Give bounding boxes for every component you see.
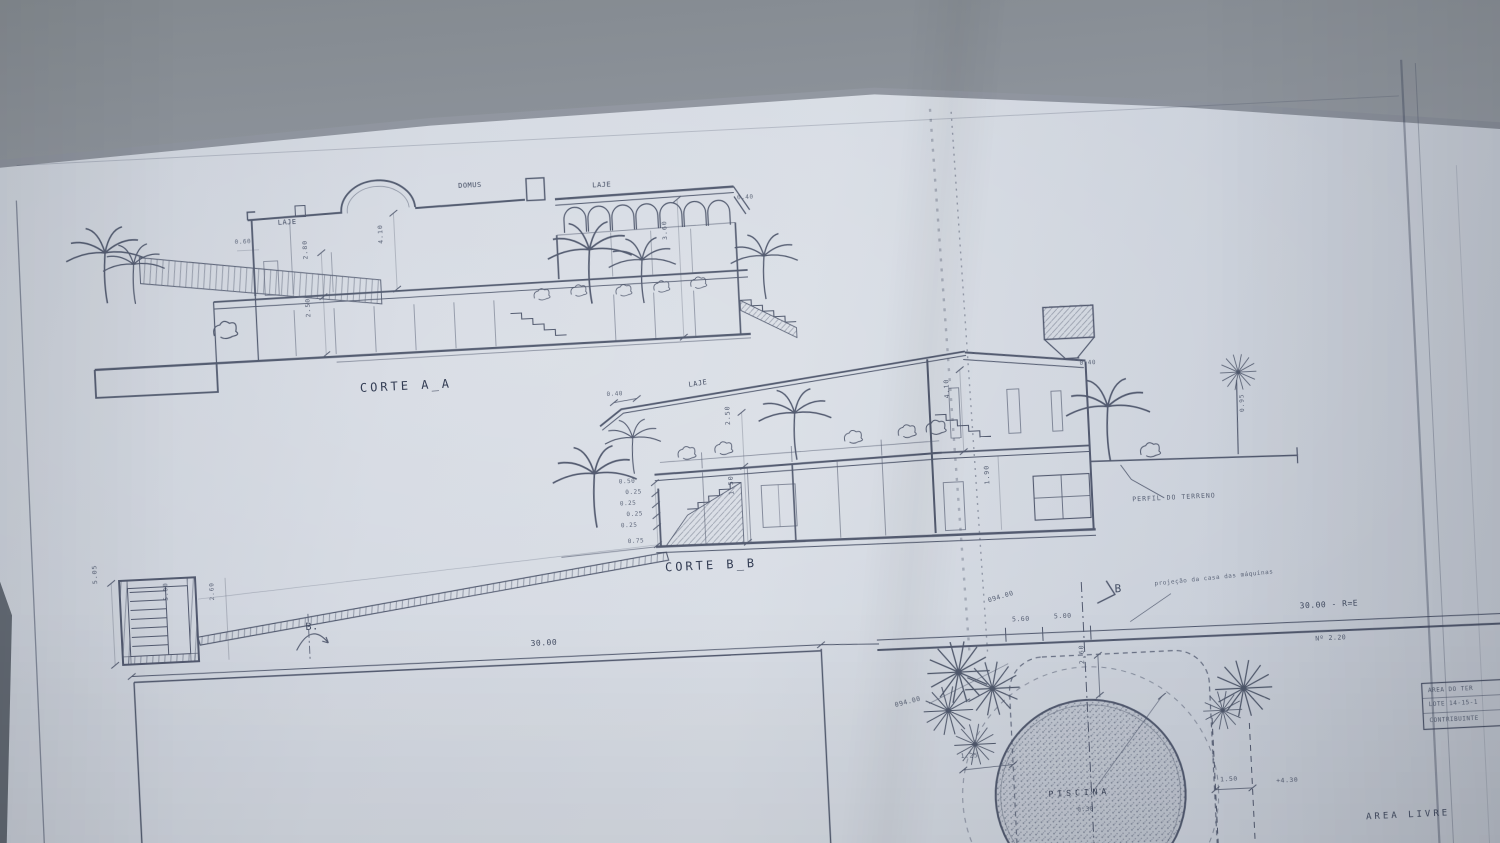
dim-040-eave: 0.40 xyxy=(606,390,623,398)
corte-bb-section xyxy=(545,295,1300,561)
dim-560: 5.60 xyxy=(1012,615,1030,624)
dim-040-tank: 0.40 xyxy=(1079,359,1096,367)
riser-1: 0.25 xyxy=(625,488,642,496)
dim-500-ramp: 5.00 xyxy=(162,582,170,601)
dim-260-ramp: 2.60 xyxy=(208,582,216,601)
ramp-marker-b: B. xyxy=(305,621,319,633)
dim-360: 3.60 xyxy=(660,220,669,240)
ramp-section xyxy=(107,534,892,843)
domus-label: DOMUS xyxy=(458,181,482,190)
site-plan xyxy=(875,561,1500,843)
linework xyxy=(0,0,1500,843)
riser-5: 0.75 xyxy=(628,537,645,545)
dim-190: 1.90 xyxy=(982,465,991,485)
laje-right-label: LAJE xyxy=(592,181,611,190)
dim-150-site: 1.50 xyxy=(1220,775,1238,784)
dim-040-aa: 0.40 xyxy=(737,194,754,202)
riser-2: 0.25 xyxy=(620,500,637,508)
drawing-sheet: LAJE DOMUS LAJE 0.60 2.80 4.10 2.50 3.60… xyxy=(0,0,1500,843)
dim-280: 2.80 xyxy=(301,240,310,260)
dim-410-aa: 4.10 xyxy=(376,224,385,244)
corte-aa-section xyxy=(63,160,803,399)
street-number: Nº 2.20 xyxy=(1315,633,1346,643)
site-marker-b: B xyxy=(1114,582,1122,595)
laje-left-label: LAJE xyxy=(278,218,297,227)
dim-250-aa: 2.50 xyxy=(303,298,312,318)
riser-0: 0.50 xyxy=(619,478,636,486)
riser-3: 0.25 xyxy=(626,510,643,518)
dim-260-site: 2.60 xyxy=(1077,644,1086,664)
dim-3000: 30.00 xyxy=(530,638,557,648)
pool-depth: 0.30 xyxy=(1077,806,1094,814)
dim-095: 0.95 xyxy=(1238,393,1246,412)
blueprint-photo: LAJE DOMUS LAJE 0.60 2.80 4.10 2.50 3.60… xyxy=(0,0,1500,843)
sheet-borders xyxy=(9,57,1491,843)
dim-430: +4.30 xyxy=(1276,776,1298,785)
dim-060: 0.60 xyxy=(234,238,251,246)
dim-500-site: 5.00 xyxy=(1054,612,1072,621)
dim-125: 1.25 xyxy=(960,751,978,760)
dim-505: 5.05 xyxy=(90,564,99,584)
dim-150-bb: 1.50 xyxy=(727,475,736,495)
riser-4: 0.25 xyxy=(621,522,638,530)
dim-410-bb: 4.10 xyxy=(942,379,951,399)
dim-250-bb: 2.50 xyxy=(723,405,732,425)
